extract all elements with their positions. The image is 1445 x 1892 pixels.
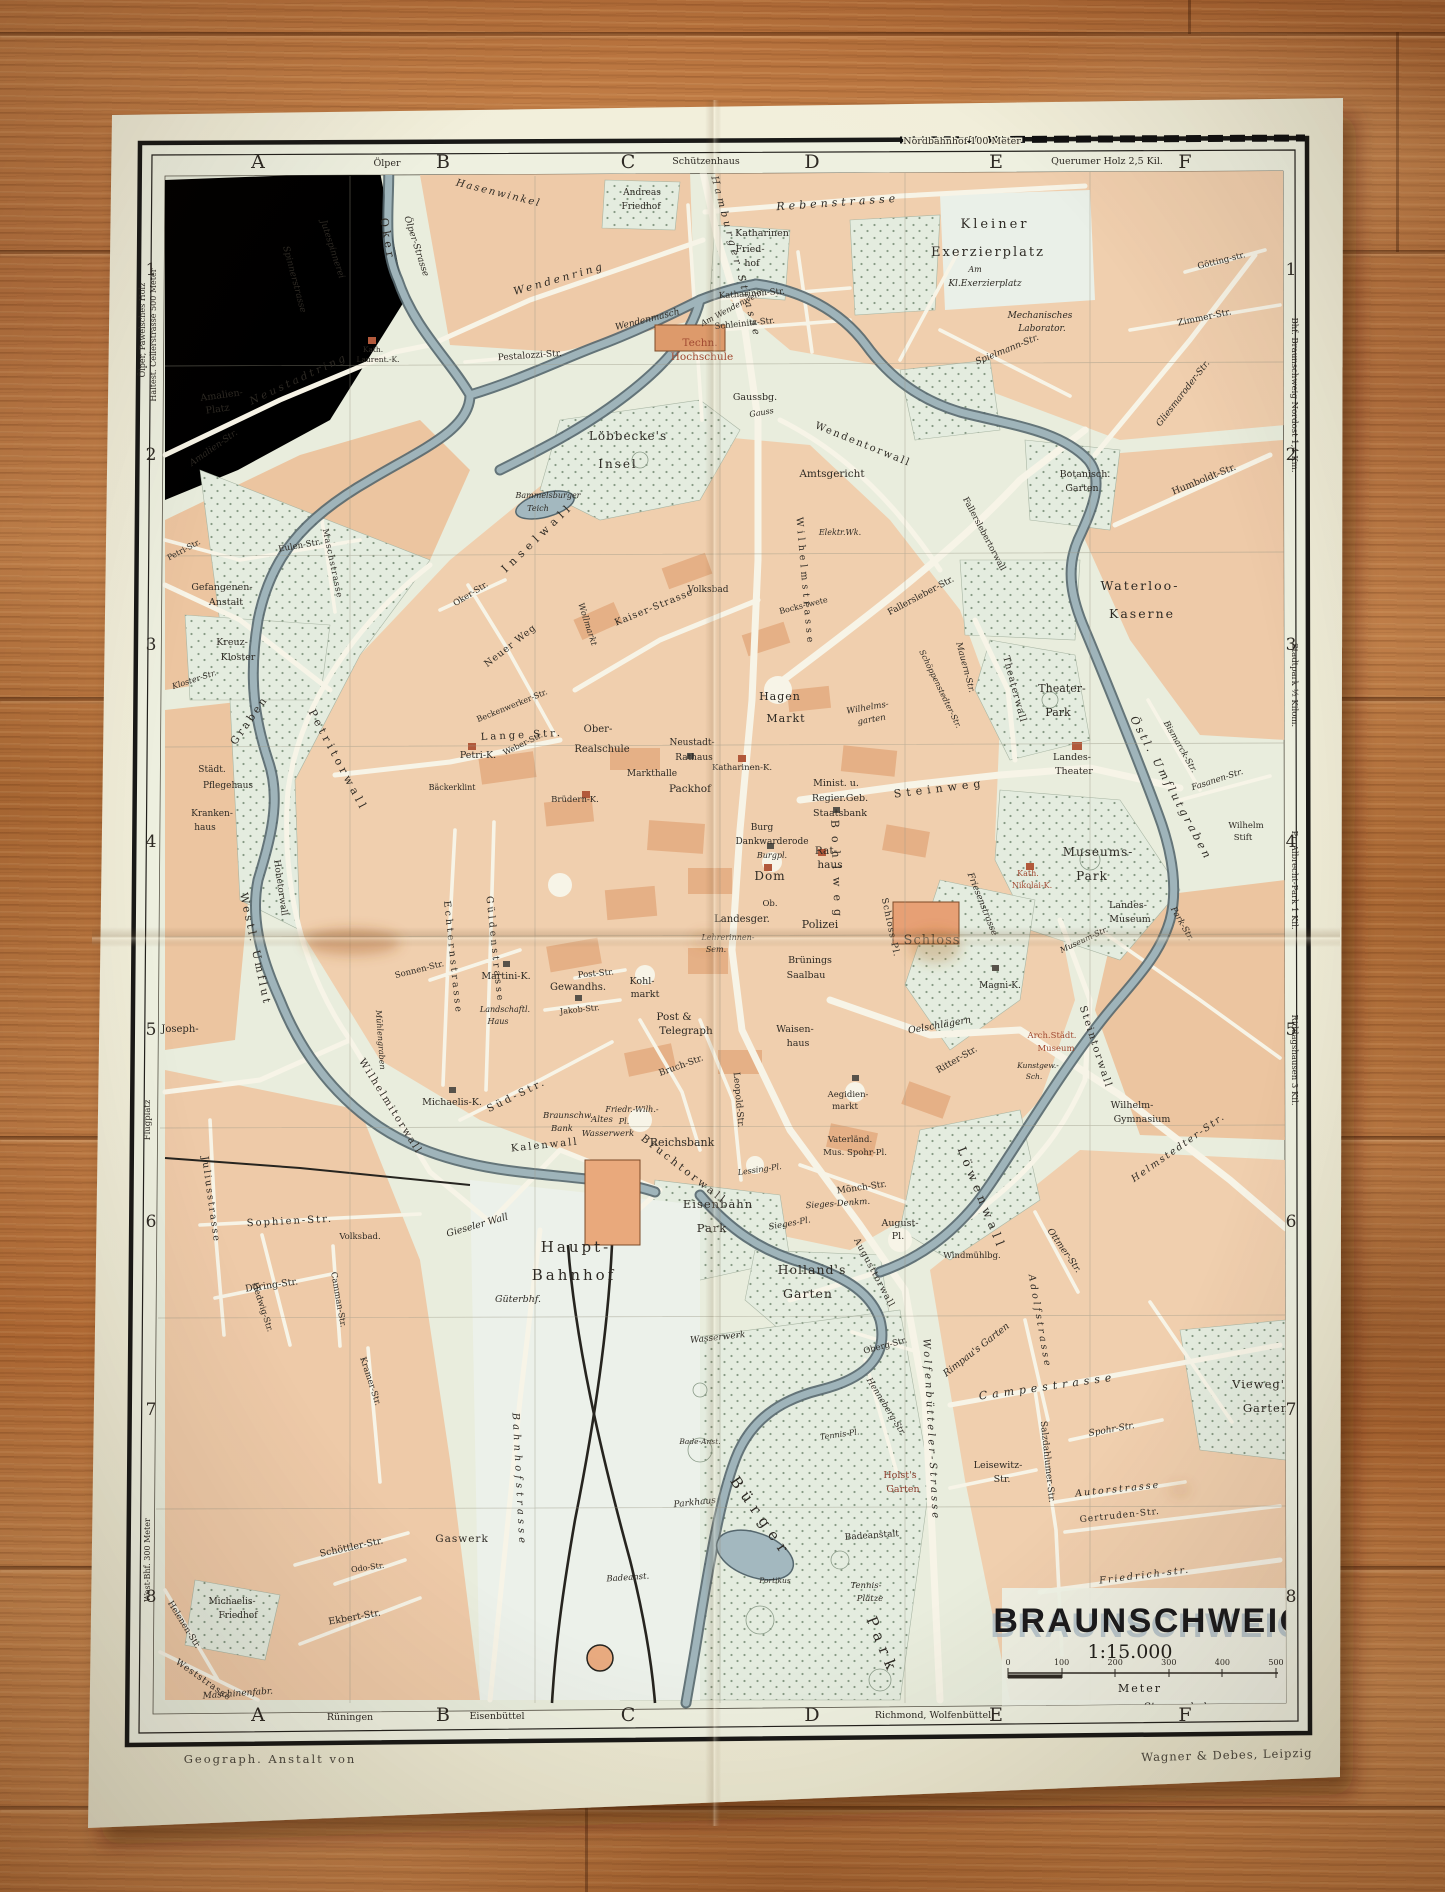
grid-number-left: 3 (146, 635, 157, 655)
map-label: Mechanisches (1007, 311, 1073, 321)
margin-note: Nordbahnhof 100 Meter (903, 136, 1021, 147)
map-label: Plätze (856, 1594, 883, 1604)
margin-note: Querumer Holz 2,5 Kil. (1051, 156, 1163, 167)
map-label: Nikolai-K. (1012, 881, 1052, 890)
map-label: Löbbecke's (589, 429, 667, 443)
map-label: Elektr.Wk. (818, 528, 861, 537)
map-label: Kreuz- (216, 637, 248, 648)
antique-map-photo: BRAUNSCHWEIG BRAUNSCHWEIG 1:15.000 Meter… (0, 0, 1445, 1892)
margin-note: Ölper, Pawelsches Holz (138, 283, 147, 378)
grid-letter-top: A (250, 151, 265, 173)
map-label: Ober- (584, 724, 613, 735)
map-title: BRAUNSCHWEIG (993, 1602, 1308, 1640)
grid-number-left: 2 (146, 445, 157, 465)
map-label: Michaelis- (208, 1597, 255, 1607)
map-label: Mus. Spohr-Pl. (823, 1148, 887, 1158)
grid-letter-bottom: C (621, 1704, 636, 1726)
map-label: Arch.Städt. (1026, 1031, 1076, 1041)
grid-letter-top: F (1178, 151, 1191, 173)
map-label: Aegidien- (827, 1090, 869, 1100)
map-label: Gefangenen- (191, 582, 252, 593)
grid-number-right: 1 (1286, 260, 1297, 280)
map-label: Kath. (1017, 869, 1039, 878)
map-label: Staatsbank (813, 808, 867, 819)
grid-letter-bottom: B (436, 1704, 450, 1726)
map-label: Garten (1065, 483, 1098, 494)
scale-tick-label: 0 (1005, 1658, 1010, 1667)
margin-note: Bhf. Braunschweig Nordost 1,4 Km. (1289, 317, 1299, 472)
margin-note: Ölper (373, 157, 401, 169)
map-label: Post & (656, 1011, 691, 1023)
map-label: Hochschule (671, 351, 734, 363)
grid-letter-bottom: D (804, 1704, 819, 1726)
scale-tick-label: 500 (1268, 1658, 1283, 1667)
map-label: Brüdern-K. (551, 795, 599, 805)
margin-note: West-Bhf. 300 Meter (143, 1518, 152, 1602)
map-label: Am (967, 265, 982, 274)
margin-note: Rüningen (327, 1712, 373, 1723)
map-label: Gymnasium (1114, 1114, 1171, 1125)
map-scale: 1:15.000 (1088, 1641, 1173, 1663)
map-label: Städt. (198, 765, 226, 775)
map-label: Waterloo- (1101, 578, 1180, 593)
map-label: Wasserwerk (582, 1129, 634, 1139)
map-label: Landesger. (714, 914, 770, 925)
map-label: Joseph- (160, 1024, 198, 1035)
map-label: Bahnhof (532, 1266, 617, 1284)
map-label: Ob. (762, 899, 777, 909)
map-label: Minist. u. (813, 778, 859, 789)
margin-note: Flugplatz (143, 1099, 153, 1140)
map-label: Theater (1055, 766, 1093, 777)
scale-tick-label: 400 (1215, 1658, 1230, 1667)
map-label: Museum (1109, 914, 1150, 925)
grid-letter-bottom: E (989, 1704, 1003, 1726)
margin-note: Schützenhaus (672, 156, 740, 167)
map-label: August- (880, 1218, 918, 1229)
map-label: Pflegehaus (203, 781, 253, 791)
margin-note: Stadtpark ½ Kilom. (1289, 643, 1300, 727)
map-label: haus (787, 1038, 810, 1049)
hauptbahnhof-building (585, 1160, 640, 1245)
map-label: Burgpl. (756, 851, 787, 860)
map-label: Brünings (788, 955, 832, 966)
map-label: Realschule (574, 744, 629, 755)
map-label: Pl. (892, 1231, 904, 1242)
map-label: Amtsgericht (798, 468, 865, 480)
map-label: Braunschw. (542, 1111, 593, 1121)
scale-tick-label: 300 (1161, 1658, 1176, 1667)
map-label: Anstalt (208, 597, 243, 608)
map-label: Kaserne (1109, 606, 1175, 621)
grid-letter-bottom: F (1178, 1704, 1191, 1726)
grid-number-right: 6 (1286, 1212, 1297, 1232)
map-label: Burg (751, 823, 774, 833)
grid-number-right: 7 (1286, 1400, 1297, 1420)
grid-letter-top: C (621, 151, 636, 173)
map-label: Laborator. (1017, 324, 1066, 334)
map-label: Str. (994, 1474, 1011, 1485)
map-label: Garten (886, 1484, 919, 1495)
margin-note: Riddagshausen 3 Kil. (1289, 1014, 1299, 1105)
map-label: Dankwarderode (735, 837, 808, 847)
scale-unit: Meter (1118, 1682, 1162, 1695)
map-label: Vaterländ. (827, 1135, 872, 1145)
map-label: Kranken- (191, 809, 233, 819)
map-label: Hagen (759, 690, 801, 703)
margin-note: Pr. Albrecht-Park 1 Kil. (1289, 830, 1299, 929)
grid-letter-top: B (436, 151, 450, 173)
map-label: Bammelsburger (515, 491, 582, 500)
margin-note: Eisenbüttel (469, 1711, 524, 1722)
map-label: Kohl- (630, 976, 655, 987)
map-label: Insel (598, 457, 638, 471)
map-label: haus (194, 823, 216, 833)
map-label: Stift (1234, 833, 1253, 843)
scale-tick-label: 100 (1054, 1658, 1069, 1667)
map-label: Gaswerk (435, 1533, 489, 1545)
grid-letter-top: D (804, 151, 819, 173)
map-label: Pl. (618, 1117, 629, 1126)
margin-note: Haltest. Cellerstrasse 500 Meter (149, 268, 158, 401)
map-label: Gaussbg. (733, 392, 777, 403)
map-label: markt (631, 989, 660, 1000)
map-label: Windmühlbg. (943, 1251, 1001, 1261)
station-yard (470, 1180, 700, 1700)
map-label: Kath. (363, 345, 383, 354)
map-label: Sch. (1026, 1072, 1043, 1081)
map-label: Holst's (883, 1470, 916, 1481)
rail-turntable (587, 1645, 613, 1671)
map-label: Haus (486, 1017, 508, 1026)
map-label: Bäckerklint (429, 783, 477, 792)
map-label: Landes- (1109, 900, 1147, 911)
grid-number-right: 8 (1286, 1587, 1297, 1607)
title-block: BRAUNSCHWEIG BRAUNSCHWEIG 1:15.000 Meter… (990, 1588, 1308, 1713)
map-label: Theater- (1038, 682, 1086, 695)
map-label: Friedhof (218, 1611, 258, 1621)
map-label: Landschaftl. (479, 1005, 530, 1014)
map-label: Altes (590, 1115, 613, 1125)
map-label: Petri-K. (460, 750, 496, 761)
grid-number-left: 6 (146, 1212, 157, 1232)
map-label: Martini-K. (481, 971, 530, 982)
map-label: Friedr.-Wilh.- (604, 1105, 658, 1114)
map-label: Kleiner (960, 217, 1029, 232)
map-label: Garten (783, 1286, 833, 1301)
map-label: Museums- (1063, 845, 1134, 859)
map-label: Andreas (622, 188, 661, 198)
map-label: Telegraph (659, 1025, 713, 1037)
map-label: Katharinen (735, 228, 789, 239)
map-label: Holland's (778, 1262, 847, 1277)
map-label: hof (744, 258, 761, 269)
map-label: Magni-K. (979, 981, 1021, 991)
grid-number-left: 7 (146, 1400, 157, 1420)
map-label: Museum (1037, 1044, 1074, 1054)
map-label: Waisen- (776, 1024, 813, 1035)
map-label: Markthalle (627, 769, 677, 779)
map-label: Tennis- (851, 1581, 882, 1591)
map-label: Dom (754, 869, 785, 883)
map-label: Kunstgew.- (1016, 1061, 1059, 1070)
map-label: Haupt- (541, 1238, 611, 1256)
map-label: Teich (527, 504, 549, 513)
map-label: Gewandhs. (550, 982, 606, 993)
map-label: Kl.Exerzierplatz (947, 279, 1022, 289)
grid-letter-bottom: A (250, 1704, 265, 1726)
map-label: markt (832, 1102, 858, 1112)
map-label: Michaelis-K. (422, 1097, 482, 1108)
map-label: Botanisch. (1060, 469, 1111, 480)
map-label: Volksbad. (338, 1232, 380, 1242)
map-label: Leisewitz- (974, 1460, 1023, 1471)
map-label: Park (1076, 869, 1108, 883)
map-label: Landes- (1053, 752, 1091, 763)
map-label: Park (1045, 706, 1071, 719)
map-label: Regier.Geb. (812, 793, 868, 804)
grid-number-left: 5 (146, 1020, 157, 1040)
fold-crease-vertical (705, 100, 721, 1826)
map-label: Exerzierplatz (931, 245, 1045, 260)
scale-tick-label: 200 (1108, 1658, 1123, 1667)
map-label: Güterbhf. (495, 1294, 541, 1305)
map-label: Bank (550, 1124, 573, 1134)
map-label: Friedhof (621, 202, 661, 212)
map-label: Wilhelm (1228, 821, 1263, 831)
grid-number-left: 4 (146, 832, 157, 852)
map-label: Garten (1243, 1401, 1289, 1415)
map-label: Markt (766, 712, 805, 725)
map-label: Saalbau (787, 970, 826, 981)
grid-letter-top: E (989, 151, 1003, 173)
map-label: Wilhelm- (1111, 1100, 1154, 1111)
imprint-left: Geograph. Anstalt von (184, 1752, 357, 1766)
map-label: Kloster (221, 652, 256, 663)
map-label: Portikus (758, 1576, 791, 1585)
map-label: Laurent.-K. (356, 355, 399, 364)
margin-note: Richmond, Wolfenbüttel (875, 1710, 991, 1721)
map-label: Vieweg's (1231, 1377, 1292, 1391)
